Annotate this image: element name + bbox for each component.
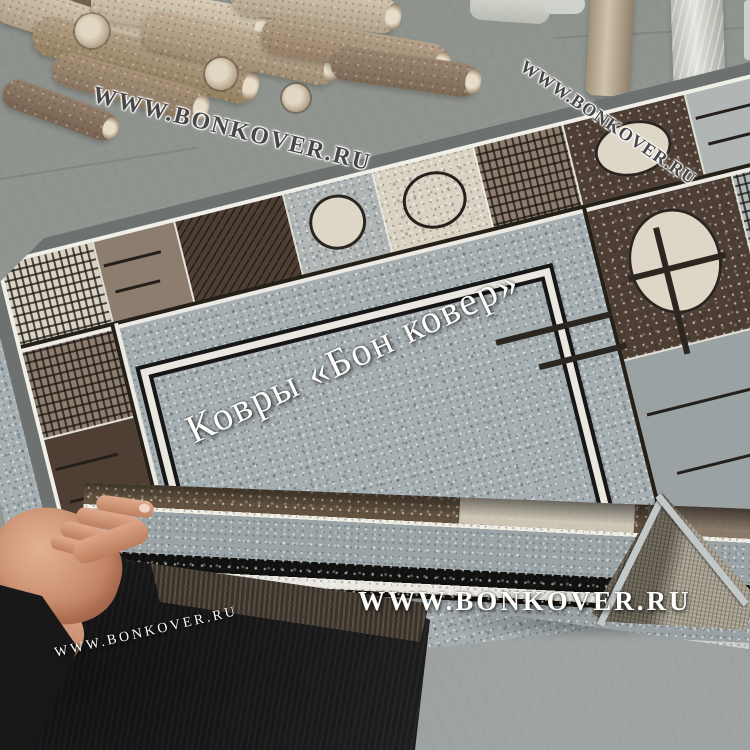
hand — [0, 0, 750, 750]
sleeve — [0, 0, 750, 750]
product-photo: WWW.BONKOVER.RU WWW.BONKOVER.RU Ковры «Б… — [0, 0, 750, 750]
